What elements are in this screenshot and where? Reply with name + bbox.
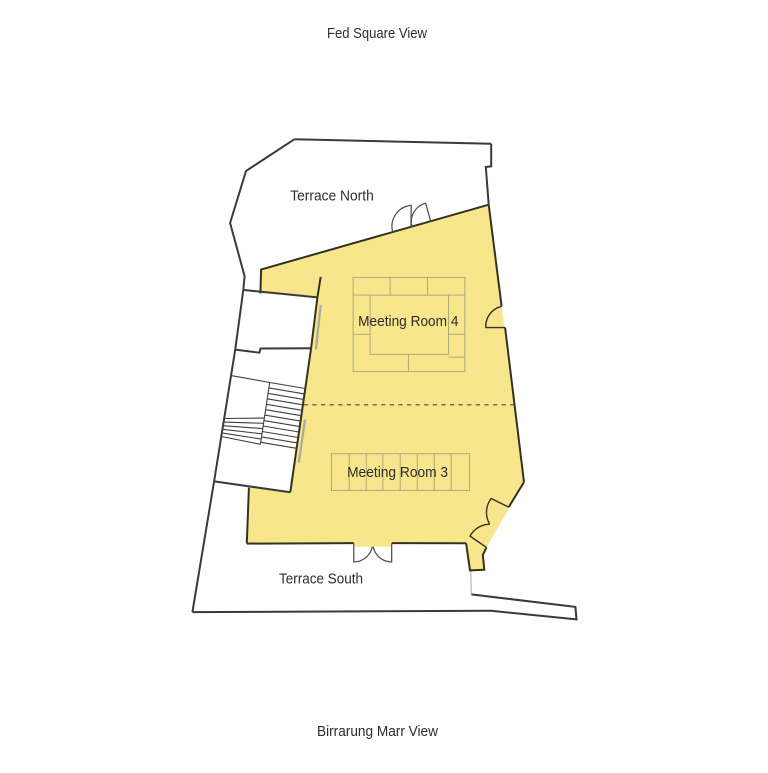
svg-text:Terrace South: Terrace South xyxy=(279,572,363,588)
svg-text:Terrace North: Terrace North xyxy=(290,189,374,205)
svg-text:Birrarung Marr View: Birrarung Marr View xyxy=(317,723,438,740)
svg-text:Meeting Room 3: Meeting Room 3 xyxy=(347,465,448,481)
svg-text:Fed Square View: Fed Square View xyxy=(327,25,427,42)
svg-text:Meeting Room 4: Meeting Room 4 xyxy=(358,314,458,330)
